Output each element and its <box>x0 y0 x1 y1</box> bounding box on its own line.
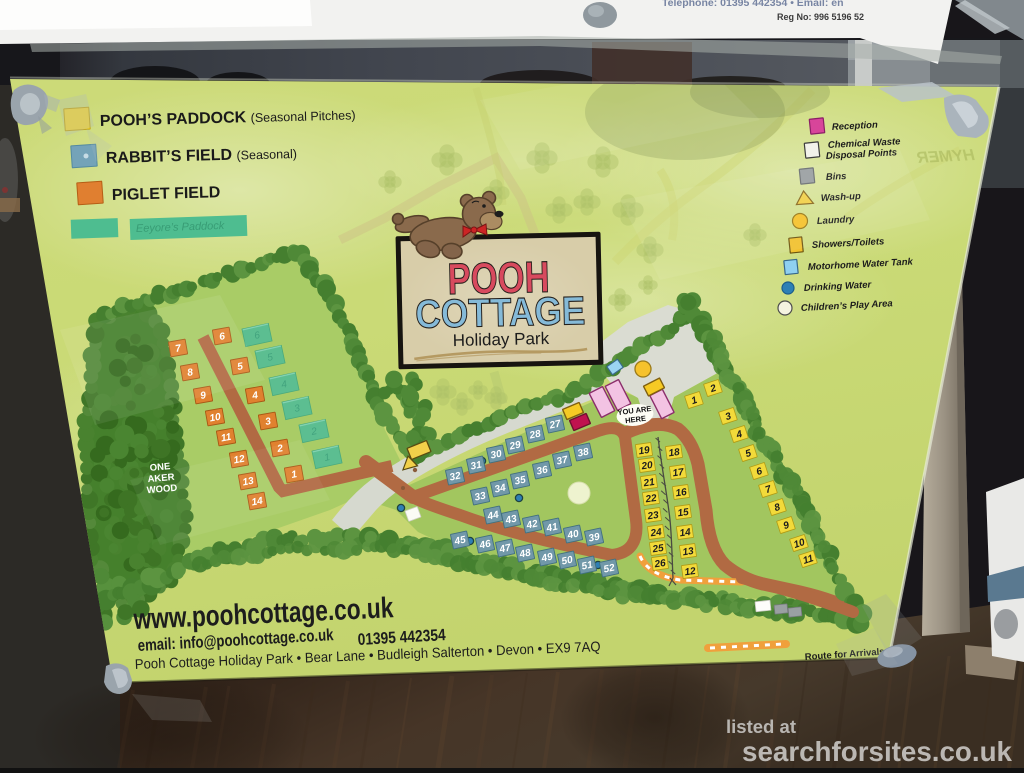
svg-text:20: 20 <box>640 460 654 473</box>
svg-text:19: 19 <box>638 445 651 458</box>
svg-text:23: 23 <box>646 510 660 523</box>
svg-text:24: 24 <box>649 527 663 540</box>
svg-text:PIGLET FIELD: PIGLET FIELD <box>112 184 221 204</box>
svg-text:Telephone: 01395 442354 • Emai: Telephone: 01395 442354 • Email: en <box>662 0 843 9</box>
svg-text:13: 13 <box>682 546 695 559</box>
svg-text:Holiday Park: Holiday Park <box>453 329 550 350</box>
svg-text:listed at: listed at <box>726 717 796 737</box>
svg-text:21: 21 <box>642 477 656 490</box>
svg-text:25: 25 <box>651 543 665 556</box>
svg-text:18: 18 <box>668 447 681 460</box>
svg-text:HYMER: HYMER <box>916 147 975 167</box>
svg-text:Reg No: 996 5196 52: Reg No: 996 5196 52 <box>777 12 864 22</box>
svg-text:14: 14 <box>679 527 692 540</box>
svg-text:17: 17 <box>672 467 685 480</box>
svg-text:22: 22 <box>644 493 658 506</box>
svg-text:15: 15 <box>677 507 690 520</box>
svg-text:16: 16 <box>675 487 688 500</box>
svg-text:searchforsites.co.uk: searchforsites.co.uk <box>742 736 1012 767</box>
svg-text:12: 12 <box>684 566 697 579</box>
svg-text:26: 26 <box>653 558 667 571</box>
